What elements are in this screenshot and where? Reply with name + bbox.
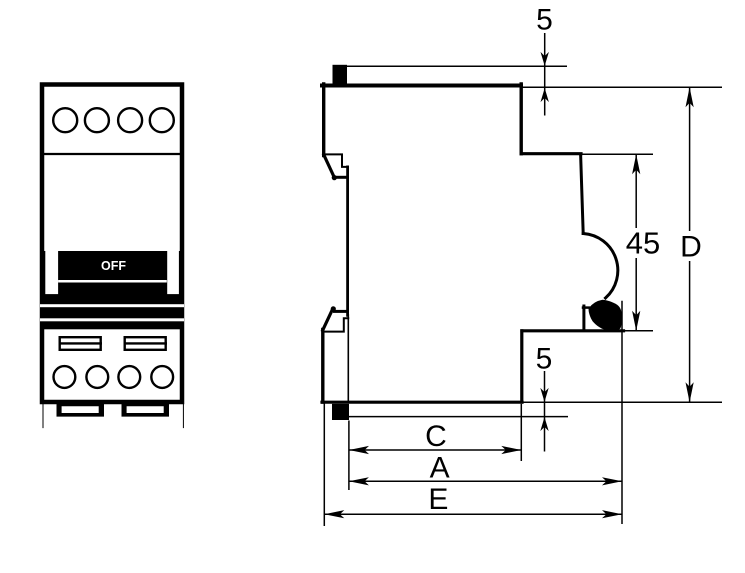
svg-text:D: D (680, 231, 702, 264)
svg-text:A: A (430, 452, 450, 485)
svg-text:5: 5 (536, 4, 553, 37)
svg-text:5: 5 (536, 343, 553, 376)
svg-text:E: E (428, 483, 448, 516)
svg-text:45: 45 (626, 226, 660, 261)
svg-text:C: C (425, 420, 447, 453)
svg-text:OFF: OFF (101, 259, 126, 273)
